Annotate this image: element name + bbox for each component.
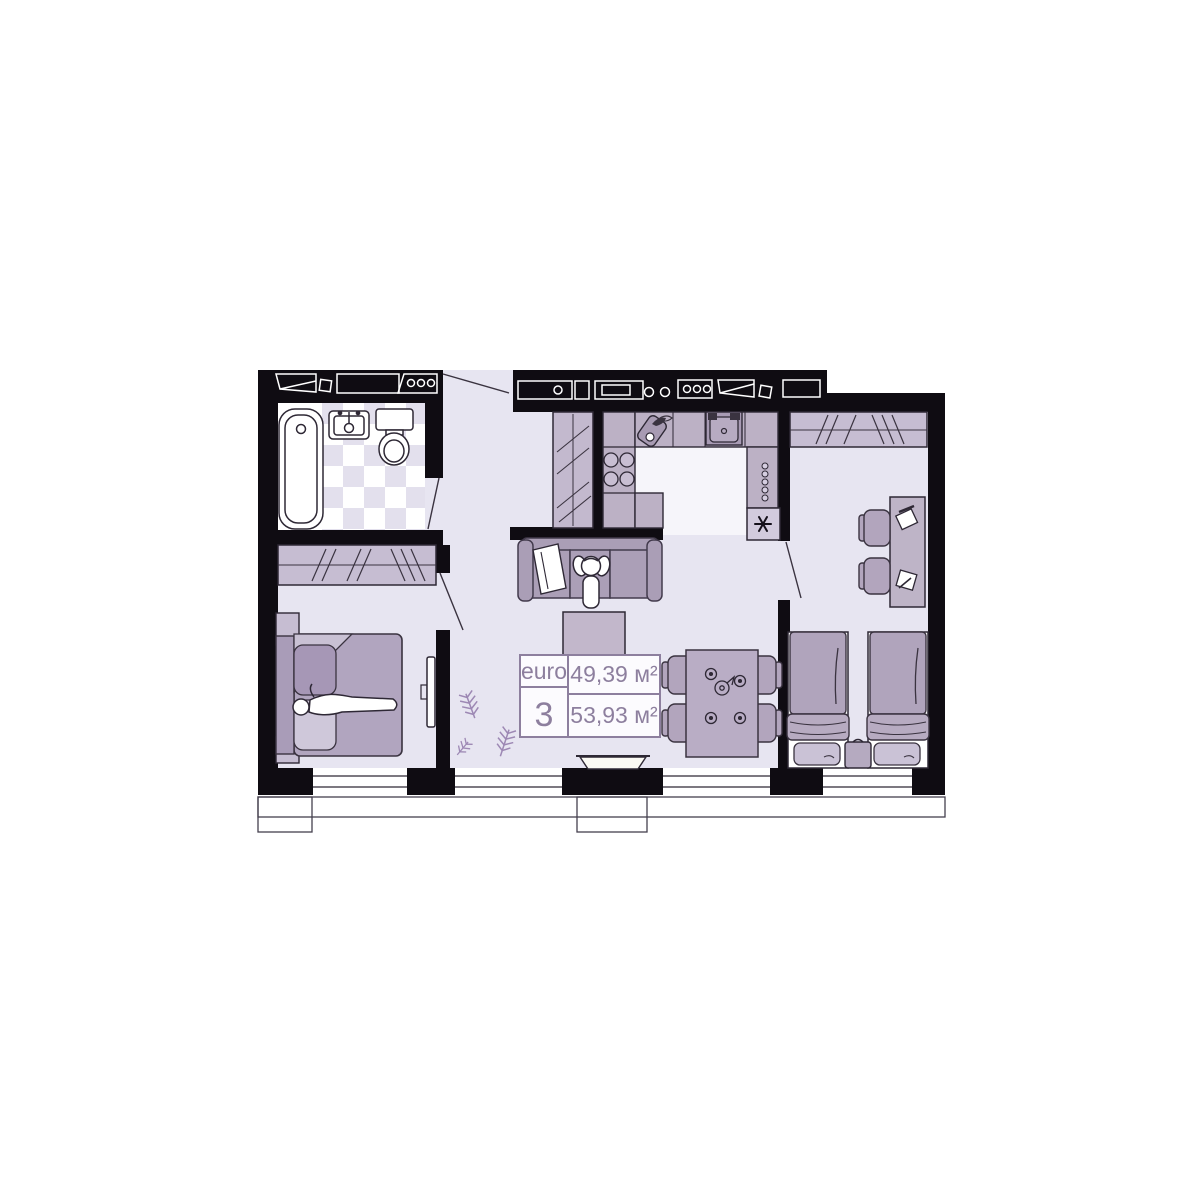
living-area-value: 49,39 м²: [570, 661, 658, 687]
balcony-box-center: [577, 797, 647, 832]
window-bedroom-left: [313, 768, 407, 795]
wall-kitchen-divider: [593, 412, 603, 528]
dining-set: [662, 650, 782, 757]
unit-type-number: 3: [535, 696, 554, 734]
balcony-outline: [258, 797, 945, 832]
wall-top-right: [825, 393, 928, 412]
floor-plan-page: euro 3 49,39 м² 53,93 м²: [0, 0, 1200, 1200]
wall-bedroom-upper: [436, 545, 450, 573]
single-bed-icon: [787, 632, 849, 768]
kitchen-sink-icon: [706, 412, 742, 445]
window-living-left: [455, 768, 562, 795]
balcony-band: [258, 797, 945, 817]
wall-right: [928, 393, 945, 795]
window-sill-dish-icon: [576, 756, 650, 769]
unit-type-label: euro: [521, 658, 567, 684]
wardrobe-icon: [278, 545, 436, 585]
bathtub-icon: [279, 409, 323, 529]
desk-chair-icon: [859, 510, 890, 546]
nightstand-icon: [845, 740, 871, 769]
wall-bathroom-right: [425, 370, 443, 478]
wall-left: [258, 370, 278, 795]
dining-table-icon: [686, 650, 758, 757]
area-label: euro 3 49,39 м² 53,93 м²: [520, 655, 660, 737]
top-right-mask: [827, 360, 947, 393]
wardrobe-icon: [790, 412, 927, 447]
wall-band-top-left: [258, 370, 443, 403]
balcony-box-left: [258, 797, 312, 832]
window-bedroom-right: [823, 768, 912, 795]
floor-plan: euro 3 49,39 м² 53,93 м²: [0, 0, 1200, 1200]
wall-bedroom-lower: [436, 630, 450, 768]
pantry-cabinet-icon: [553, 412, 593, 528]
single-bed-icon: [867, 632, 929, 768]
desk-chair-icon: [859, 558, 890, 594]
total-area-value: 53,93 м²: [570, 702, 658, 728]
sink-icon: [329, 411, 369, 439]
fridge-icon: [747, 508, 780, 540]
wall-bathroom-bottom: [258, 530, 443, 545]
window-living-right: [663, 768, 770, 795]
coffee-table-icon: [563, 612, 625, 658]
side-counter-icon: [747, 447, 778, 508]
